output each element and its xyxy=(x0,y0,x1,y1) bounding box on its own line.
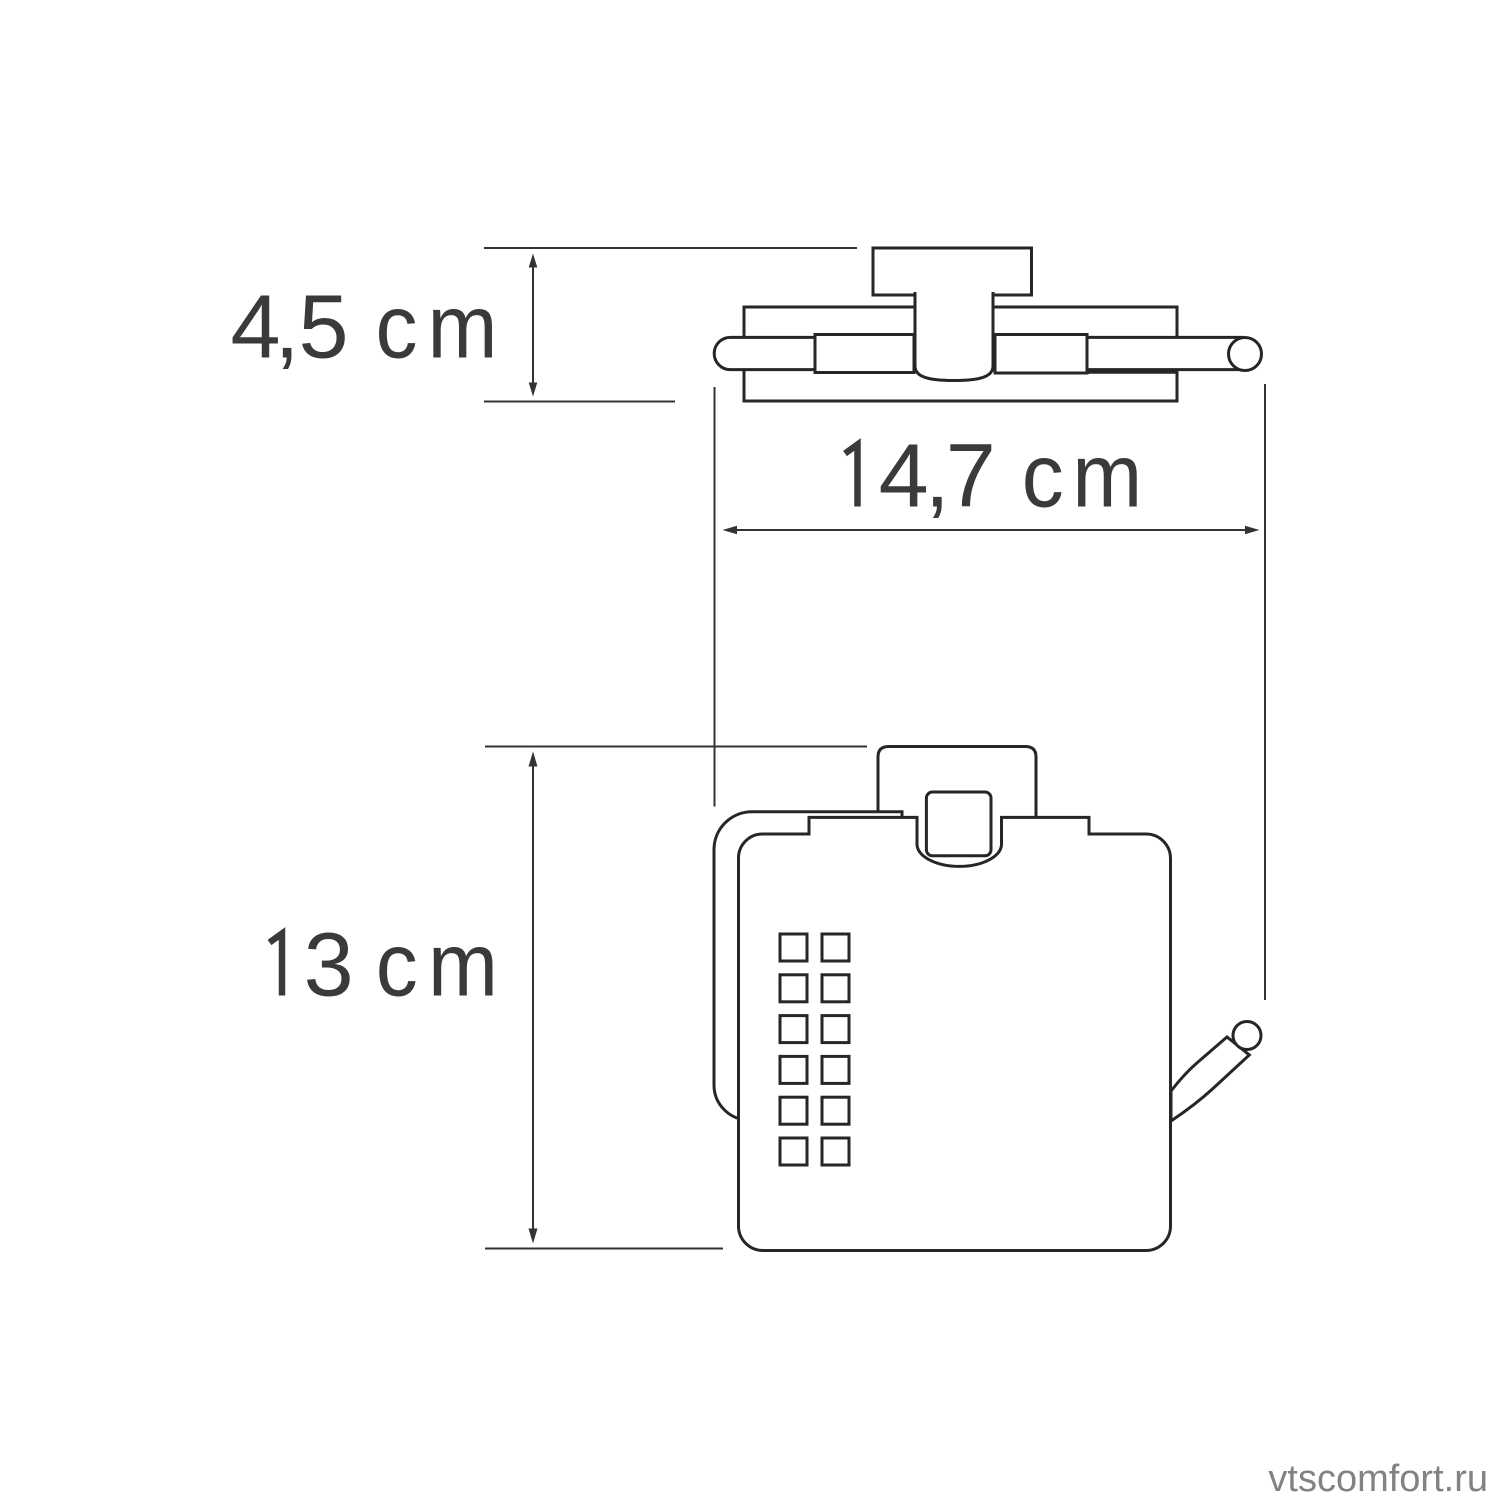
svg-text:vtscomfort.ru: vtscomfort.ru xyxy=(1268,1458,1488,1500)
svg-text:c: c xyxy=(376,916,418,1016)
svg-text:,: , xyxy=(274,278,299,378)
svg-text:4: 4 xyxy=(879,427,929,527)
svg-text:c: c xyxy=(376,278,418,378)
svg-text:m: m xyxy=(1072,427,1142,527)
svg-text:5: 5 xyxy=(298,278,348,378)
svg-text:c: c xyxy=(1022,427,1064,527)
svg-text:7: 7 xyxy=(946,427,996,527)
svg-text:m: m xyxy=(428,278,498,378)
svg-text:3: 3 xyxy=(304,916,354,1016)
svg-text:m: m xyxy=(428,916,498,1016)
svg-text:4: 4 xyxy=(230,278,280,378)
